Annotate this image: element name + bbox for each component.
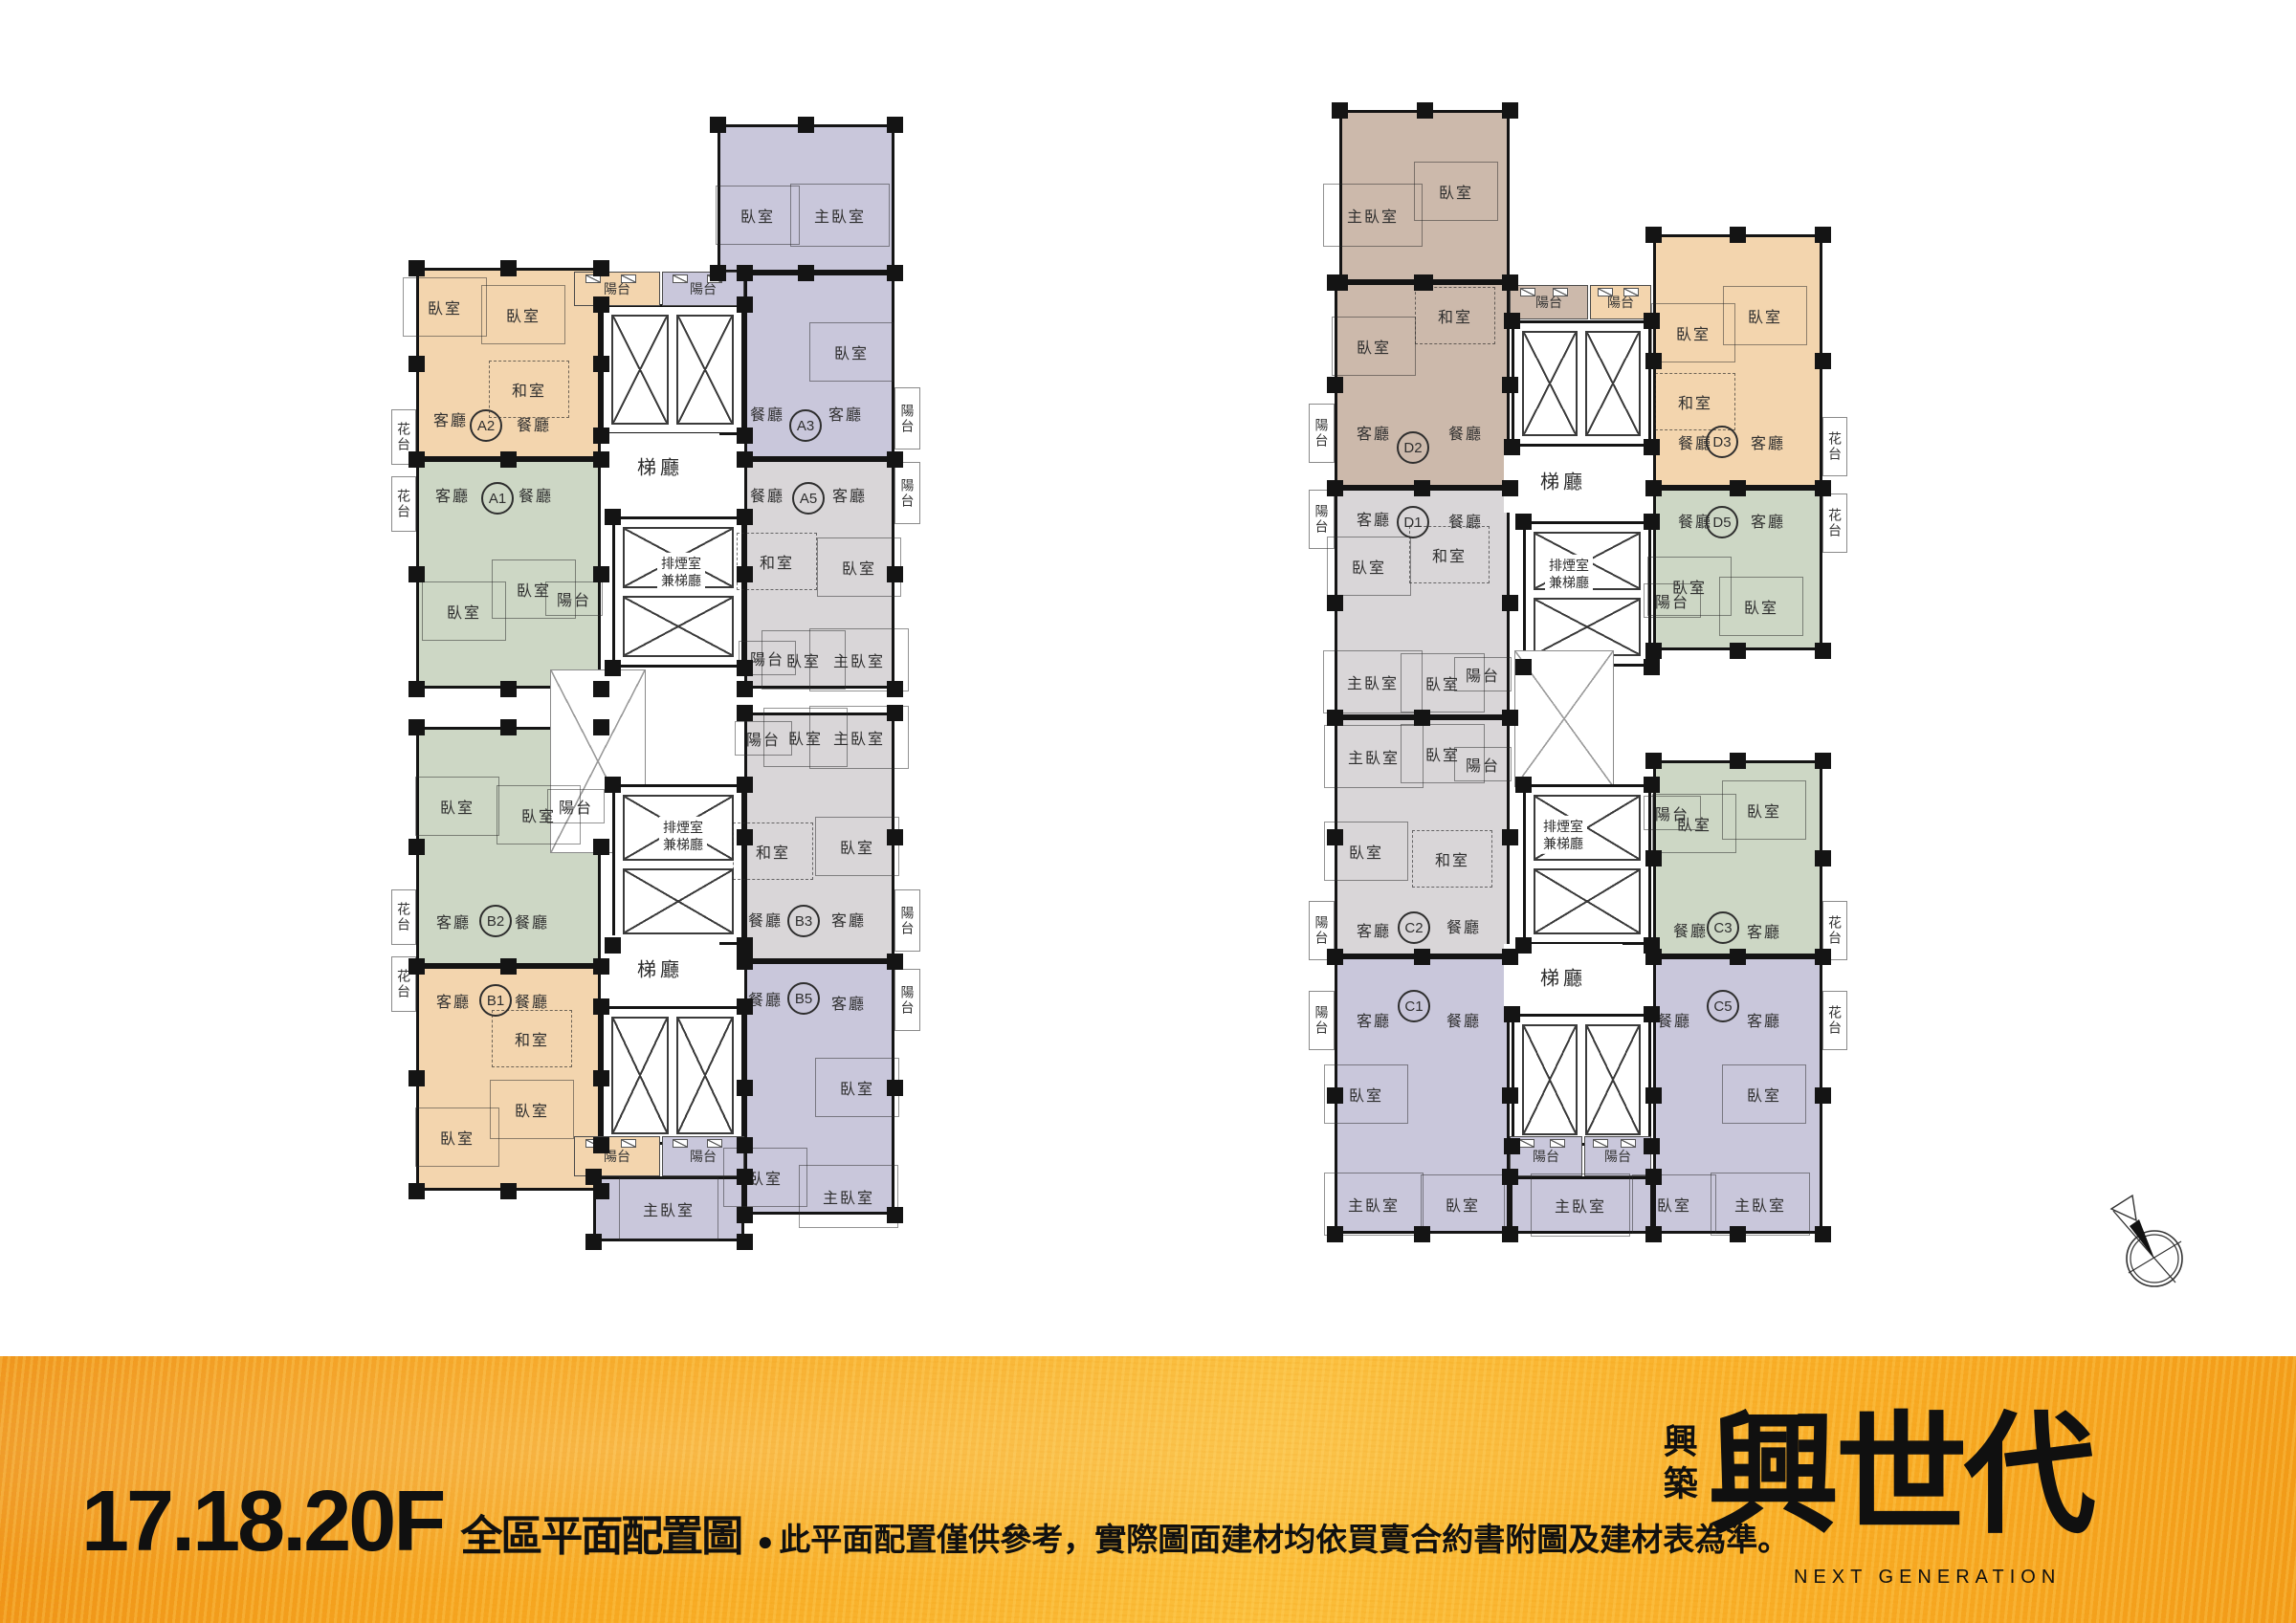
column-pier	[1645, 227, 1662, 243]
unit-badge-a3: A3	[789, 409, 822, 442]
column-pier	[1327, 274, 1343, 291]
stair-shaft	[1585, 1024, 1641, 1135]
room-label: 臥室	[1657, 1193, 1691, 1216]
stair-shaft	[1522, 1024, 1578, 1135]
column-pier	[593, 451, 609, 468]
column-pier	[593, 839, 609, 855]
strip-label: 陽台	[690, 1147, 717, 1166]
strip-label: 花台	[1825, 915, 1844, 946]
column-pier	[605, 937, 621, 954]
bullet-icon: ●	[757, 1526, 773, 1557]
room-label: 臥室	[440, 795, 475, 818]
column-pier	[1515, 777, 1532, 793]
ac-condenser-icon	[621, 1139, 636, 1148]
room-label: 臥室	[1352, 555, 1386, 578]
column-pier	[605, 509, 621, 525]
strip-label: 陽台	[1604, 1147, 1631, 1166]
column-pier	[1504, 1006, 1520, 1022]
brand-vertical-text: 興築	[1660, 1423, 1696, 1507]
column-pier	[408, 719, 425, 735]
column-pier	[737, 1137, 753, 1153]
unit-badge-a2: A2	[470, 409, 502, 442]
column-pier	[1515, 937, 1532, 954]
room-label: 客廳	[435, 483, 470, 506]
column-pier	[887, 117, 903, 133]
elevator-shaft	[623, 868, 734, 934]
poster-canvas: 梯廳梯廳梯廳梯廳排煙室兼梯廳排煙室兼梯廳排煙室兼梯廳排煙室兼梯廳陽台陽台陽台陽台…	[0, 0, 2296, 1623]
unit-badge-c1: C1	[1398, 990, 1430, 1022]
balcony-strip: 陽台	[894, 462, 920, 524]
strip-label: 花台	[394, 902, 413, 932]
column-pier	[737, 1207, 753, 1223]
column-pier	[1730, 949, 1746, 965]
strip-label: 花台	[1825, 508, 1844, 538]
unit-badge-d1: D1	[1397, 506, 1429, 538]
column-pier	[1644, 1006, 1660, 1022]
room-label: 臥室	[440, 1126, 475, 1149]
column-pier	[408, 839, 425, 855]
column-pier	[500, 260, 517, 276]
room-label: 主臥室	[1555, 1194, 1606, 1217]
ac-condenser-icon	[1598, 288, 1613, 296]
room-label: 客廳	[436, 910, 471, 932]
column-pier	[593, 958, 609, 975]
room-label: 臥室	[1748, 304, 1782, 327]
column-pier	[1502, 1226, 1518, 1242]
column-pier	[1644, 1138, 1660, 1154]
unit-badge-d3: D3	[1706, 426, 1738, 458]
room-label: 主臥室	[833, 726, 885, 749]
column-pier	[1502, 595, 1518, 611]
unit-badge-d2: D2	[1397, 431, 1429, 464]
column-pier	[887, 265, 903, 281]
column-pier	[1414, 1226, 1430, 1242]
column-pier	[1515, 659, 1532, 675]
column-pier	[1327, 377, 1343, 393]
stair-shaft	[1522, 331, 1578, 436]
ac-condenser-icon	[673, 274, 688, 283]
column-pier	[737, 428, 753, 444]
ac-condenser-icon	[673, 1139, 688, 1148]
column-pier	[1327, 480, 1343, 496]
strip-label: 陽台	[1533, 1147, 1559, 1166]
room-label: 客廳	[1357, 918, 1391, 941]
room-label: 客廳	[832, 483, 867, 506]
column-pier	[887, 451, 903, 468]
column-pier	[1645, 1226, 1662, 1242]
smoke-room-label: 排煙室兼梯廳	[659, 817, 707, 855]
smoke-room-label: 排煙室兼梯廳	[657, 553, 705, 591]
column-pier	[1414, 274, 1430, 291]
column-pier	[737, 1169, 753, 1185]
column-pier	[1644, 439, 1660, 455]
room-label: 客廳	[1751, 430, 1785, 453]
strip-label: 陽台	[1313, 1005, 1332, 1036]
floor-plans: 梯廳梯廳梯廳梯廳排煙室兼梯廳排煙室兼梯廳排煙室兼梯廳排煙室兼梯廳陽台陽台陽台陽台…	[0, 0, 2296, 1356]
room-label: 臥室	[1676, 321, 1711, 344]
strip-label: 花台	[394, 489, 413, 519]
room-label: 臥室	[834, 340, 869, 363]
column-pier	[605, 777, 621, 793]
room-label: 臥室	[1747, 1083, 1781, 1106]
column-pier	[408, 1183, 425, 1199]
column-pier	[593, 296, 609, 313]
room-label: 臥室	[1357, 335, 1391, 358]
column-pier	[1502, 710, 1518, 726]
room-label: 主臥室	[643, 1197, 695, 1220]
column-pier	[1730, 227, 1746, 243]
room-label: 客廳	[1357, 421, 1391, 444]
unit-badge-d5: D5	[1706, 506, 1738, 538]
column-pier	[1815, 1087, 1831, 1104]
compass-icon	[2100, 1184, 2215, 1304]
room-label: 臥室	[748, 1166, 783, 1189]
room-label: 客廳	[1747, 1008, 1781, 1031]
column-pier	[1414, 480, 1430, 496]
ac-condenser-icon	[1621, 1139, 1636, 1148]
column-pier	[1515, 514, 1532, 530]
room-label: 陽台	[1655, 589, 1689, 612]
planter-strip: 花台	[391, 889, 416, 945]
column-pier	[1504, 1138, 1520, 1154]
elevator-shaft	[1534, 868, 1641, 934]
ac-condenser-icon	[1519, 1139, 1534, 1148]
room-label: 主臥室	[823, 1185, 874, 1208]
balcony-strip: 陽台	[1309, 991, 1335, 1050]
room-label: 主臥室	[1347, 204, 1399, 227]
balcony-strip: 陽台	[1590, 285, 1651, 319]
column-pier	[1502, 377, 1518, 393]
column-pier	[500, 719, 517, 735]
column-pier	[593, 356, 609, 372]
room-label: 餐廳	[1446, 1008, 1481, 1031]
column-pier	[1815, 353, 1831, 369]
lobby-label: 梯廳	[1540, 963, 1586, 991]
ac-condenser-icon	[707, 1139, 722, 1148]
unit-badge-b3: B3	[787, 905, 820, 937]
column-pier	[1504, 313, 1520, 329]
column-pier	[585, 1234, 602, 1250]
room-label: 客廳	[433, 407, 468, 430]
room-label: 臥室	[1349, 1083, 1383, 1106]
column-pier	[737, 829, 753, 845]
column-pier	[500, 958, 517, 975]
column-pier	[737, 998, 753, 1015]
lobby-label: 梯廳	[637, 452, 683, 480]
banner-disclaimer: 此平面配置僅供參考，實際圖面建材均依買賣合約書附圖及建材表為準。	[779, 1514, 1789, 1560]
room-label: 臥室	[842, 556, 876, 579]
column-pier	[593, 681, 609, 697]
unit-badge-b2: B2	[479, 905, 512, 937]
balcony-strip: 陽台	[894, 969, 920, 1031]
column-pier	[500, 451, 517, 468]
lobby-label: 梯廳	[1540, 467, 1586, 494]
column-pier	[737, 1234, 753, 1250]
column-pier	[1815, 850, 1831, 866]
room-label: 臥室	[1439, 180, 1473, 203]
planter-strip: 花台	[1822, 991, 1847, 1050]
stair-core	[601, 1006, 744, 1145]
room-label: 和室	[760, 550, 794, 573]
column-pier	[408, 958, 425, 975]
column-pier	[798, 265, 814, 281]
floor-label: 17.18.20F	[81, 1479, 443, 1565]
column-pier	[1644, 313, 1660, 329]
bottom-banner: 17.18.20F 全區平面配置圖 ● 此平面配置僅供參考，實際圖面建材均依買賣…	[0, 1356, 2296, 1623]
column-pier	[408, 566, 425, 582]
room-label: 餐廳	[750, 402, 784, 425]
balcony-strip: 陽台	[1309, 404, 1335, 463]
column-pier	[737, 954, 753, 970]
stair-shaft	[611, 1017, 669, 1134]
room-label: 主臥室	[1347, 670, 1399, 693]
room-label: 餐廳	[519, 483, 553, 506]
column-pier	[1730, 480, 1746, 496]
room-label: 主臥室	[1348, 745, 1400, 768]
stair-shaft	[1585, 331, 1641, 436]
room-label: 主臥室	[814, 204, 866, 227]
unit-badge-b5: B5	[787, 982, 820, 1015]
column-pier	[737, 265, 753, 281]
room-label: 和室	[1678, 390, 1712, 413]
room-label: 陽台	[557, 587, 591, 610]
column-pier	[1327, 829, 1343, 845]
stair-shaft	[676, 1017, 734, 1134]
column-pier	[737, 937, 753, 954]
column-pier	[1414, 949, 1430, 965]
strip-label: 陽台	[1313, 915, 1332, 946]
column-pier	[593, 1137, 609, 1153]
strip-label: 陽台	[1313, 504, 1332, 535]
smoke-room-label: 排煙室兼梯廳	[1545, 555, 1593, 593]
column-pier	[1502, 480, 1518, 496]
room-label: 主臥室	[1734, 1193, 1786, 1216]
column-pier	[1645, 643, 1662, 659]
column-pier	[1645, 753, 1662, 769]
column-pier	[593, 998, 609, 1015]
room-label: 餐廳	[1657, 1008, 1691, 1031]
column-pier	[1504, 439, 1520, 455]
column-pier	[1502, 829, 1518, 845]
column-pier	[737, 1080, 753, 1096]
balcony-strip: 陽台	[1510, 285, 1588, 319]
column-pier	[710, 117, 726, 133]
ac-condenser-icon	[1550, 1139, 1565, 1148]
column-pier	[887, 1207, 903, 1223]
column-pier	[1327, 710, 1343, 726]
column-pier	[737, 777, 753, 793]
room-label: 臥室	[1744, 595, 1778, 618]
column-pier	[798, 117, 814, 133]
unit-badge-b1: B1	[479, 984, 512, 1017]
room-label: 和室	[1432, 543, 1467, 566]
column-pier	[737, 296, 753, 313]
elevator-core	[1523, 784, 1651, 945]
room-label: 客廳	[1751, 509, 1785, 532]
room-label: 客廳	[1357, 1008, 1391, 1031]
column-pier	[887, 829, 903, 845]
room-label: 餐廳	[748, 987, 783, 1010]
room-label: 和室	[756, 840, 790, 863]
column-pier	[887, 954, 903, 970]
room-label: 餐廳	[1446, 914, 1481, 937]
room-label: 客廳	[828, 402, 863, 425]
column-pier	[887, 1080, 903, 1096]
strip-label: 花台	[1825, 431, 1844, 462]
column-pier	[737, 451, 753, 468]
column-pier	[605, 660, 621, 676]
room-label: 餐廳	[517, 412, 551, 435]
planter-strip: 花台	[1822, 417, 1847, 476]
column-pier	[1502, 1087, 1518, 1104]
column-pier	[585, 1169, 602, 1185]
elevator-core	[1523, 521, 1651, 667]
column-pier	[593, 1070, 609, 1086]
room-label: 餐廳	[515, 989, 549, 1012]
ac-condenser-icon	[1623, 288, 1639, 296]
room-label: 臥室	[840, 835, 874, 858]
column-pier	[1730, 1226, 1746, 1242]
room-label: 臥室	[840, 1076, 874, 1099]
banner-title: 全區平面配置圖	[460, 1502, 741, 1563]
planter-strip: 花台	[1822, 493, 1847, 553]
stair-core	[1512, 1014, 1651, 1146]
balcony-strip: 陽台	[662, 272, 744, 306]
strip-label: 陽台	[898, 404, 917, 434]
stair-core	[1512, 320, 1651, 447]
brand-main-text: 興世代	[1708, 1414, 2092, 1539]
column-pier	[408, 356, 425, 372]
column-pier	[1645, 1169, 1662, 1185]
strip-label: 陽台	[898, 478, 917, 509]
column-pier	[1730, 643, 1746, 659]
room-label: 客廳	[1357, 507, 1391, 530]
column-pier	[408, 681, 425, 697]
column-pier	[1815, 227, 1831, 243]
stair-shaft	[676, 315, 734, 425]
column-pier	[1815, 643, 1831, 659]
strip-label: 陽台	[898, 985, 917, 1016]
room-label: 和室	[1435, 847, 1469, 870]
elevator-core	[612, 784, 744, 945]
room-label: 臥室	[1349, 840, 1383, 863]
column-pier	[887, 681, 903, 697]
room-label: 主臥室	[1348, 1193, 1400, 1216]
elevator-core	[612, 516, 744, 668]
column-pier	[1327, 1226, 1343, 1242]
room-label: 陽台	[1466, 663, 1500, 686]
room-label: 陽台	[559, 795, 593, 818]
column-pier	[1645, 850, 1662, 866]
room-label: 臥室	[1747, 799, 1781, 822]
column-pier	[1332, 102, 1348, 119]
column-pier	[593, 260, 609, 276]
room-label: 和室	[512, 378, 546, 401]
column-pier	[1502, 1169, 1518, 1185]
column-pier	[887, 705, 903, 721]
strip-label: 陽台	[898, 906, 917, 936]
room-label: 客廳	[831, 908, 866, 931]
column-pier	[593, 428, 609, 444]
column-pier	[1815, 753, 1831, 769]
column-pier	[593, 566, 609, 582]
column-pier	[1417, 102, 1433, 119]
smoke-room-label: 排煙室兼梯廳	[1539, 816, 1587, 854]
strip-label: 陽台	[1313, 418, 1332, 449]
column-pier	[1644, 777, 1660, 793]
column-pier	[887, 566, 903, 582]
unit-badge-c2: C2	[1398, 911, 1430, 944]
column-pier	[1502, 274, 1518, 291]
column-pier	[1645, 480, 1662, 496]
unit-badge-c5: C5	[1707, 990, 1739, 1022]
unit-badge-a1: A1	[481, 482, 514, 515]
stair-core	[601, 304, 744, 435]
brand-logo: 興築 興世代 NEXT GENERATION	[1660, 1414, 2092, 1539]
balcony-strip: 陽台	[1584, 1136, 1651, 1176]
room-label: 臥室	[428, 296, 462, 318]
balcony-strip: 陽台	[894, 889, 920, 952]
room-label: 餐廳	[748, 908, 783, 931]
room-label: 客廳	[436, 989, 471, 1012]
balcony-strip: 陽台	[1510, 1136, 1582, 1176]
brand-sub-text: NEXT GENERATION	[1794, 1567, 2061, 1589]
column-pier	[1815, 949, 1831, 965]
room-label: 陽台	[1466, 753, 1500, 776]
room-label: 餐廳	[1673, 918, 1708, 941]
banner-caption: 17.18.20F 全區平面配置圖 ● 此平面配置僅供參考，實際圖面建材均依買賣…	[81, 1479, 1789, 1565]
room-label: 臥室	[1446, 1193, 1480, 1216]
strip-label: 花台	[1825, 1005, 1844, 1036]
column-pier	[737, 705, 753, 721]
unit-badge-c3: C3	[1707, 911, 1739, 944]
column-pier	[1645, 353, 1662, 369]
ac-condenser-icon	[1593, 1139, 1608, 1148]
column-pier	[1327, 595, 1343, 611]
column-pier	[408, 451, 425, 468]
room-label: 臥室	[1677, 812, 1711, 835]
elevator-shaft	[1534, 598, 1641, 656]
column-pier	[500, 681, 517, 697]
room-label: 和室	[515, 1027, 549, 1050]
column-pier	[1644, 514, 1660, 530]
room-label: 餐廳	[750, 483, 784, 506]
column-pier	[1815, 480, 1831, 496]
room-label: 客廳	[1747, 919, 1781, 942]
ac-condenser-icon	[621, 274, 636, 283]
room-label: 和室	[1438, 304, 1472, 327]
room-label: 臥室	[506, 303, 541, 326]
balcony-strip: 陽台	[574, 272, 660, 306]
room-label: 餐廳	[1448, 421, 1483, 444]
ac-condenser-icon	[1520, 288, 1535, 296]
planter-strip: 花台	[391, 476, 416, 532]
column-pier	[1327, 1087, 1343, 1104]
column-pier	[408, 260, 425, 276]
column-pier	[1414, 710, 1430, 726]
column-pier	[593, 1183, 609, 1199]
column-pier	[1327, 949, 1343, 965]
stair-shaft	[611, 315, 669, 425]
column-pier	[737, 509, 753, 525]
elevator-shaft	[623, 596, 734, 657]
column-pier	[1815, 1226, 1831, 1242]
room-label: 客廳	[831, 991, 866, 1014]
room-label: 臥室	[515, 1098, 549, 1121]
strip-label: 花台	[394, 422, 413, 452]
column-pier	[408, 1070, 425, 1086]
column-pier	[737, 681, 753, 697]
